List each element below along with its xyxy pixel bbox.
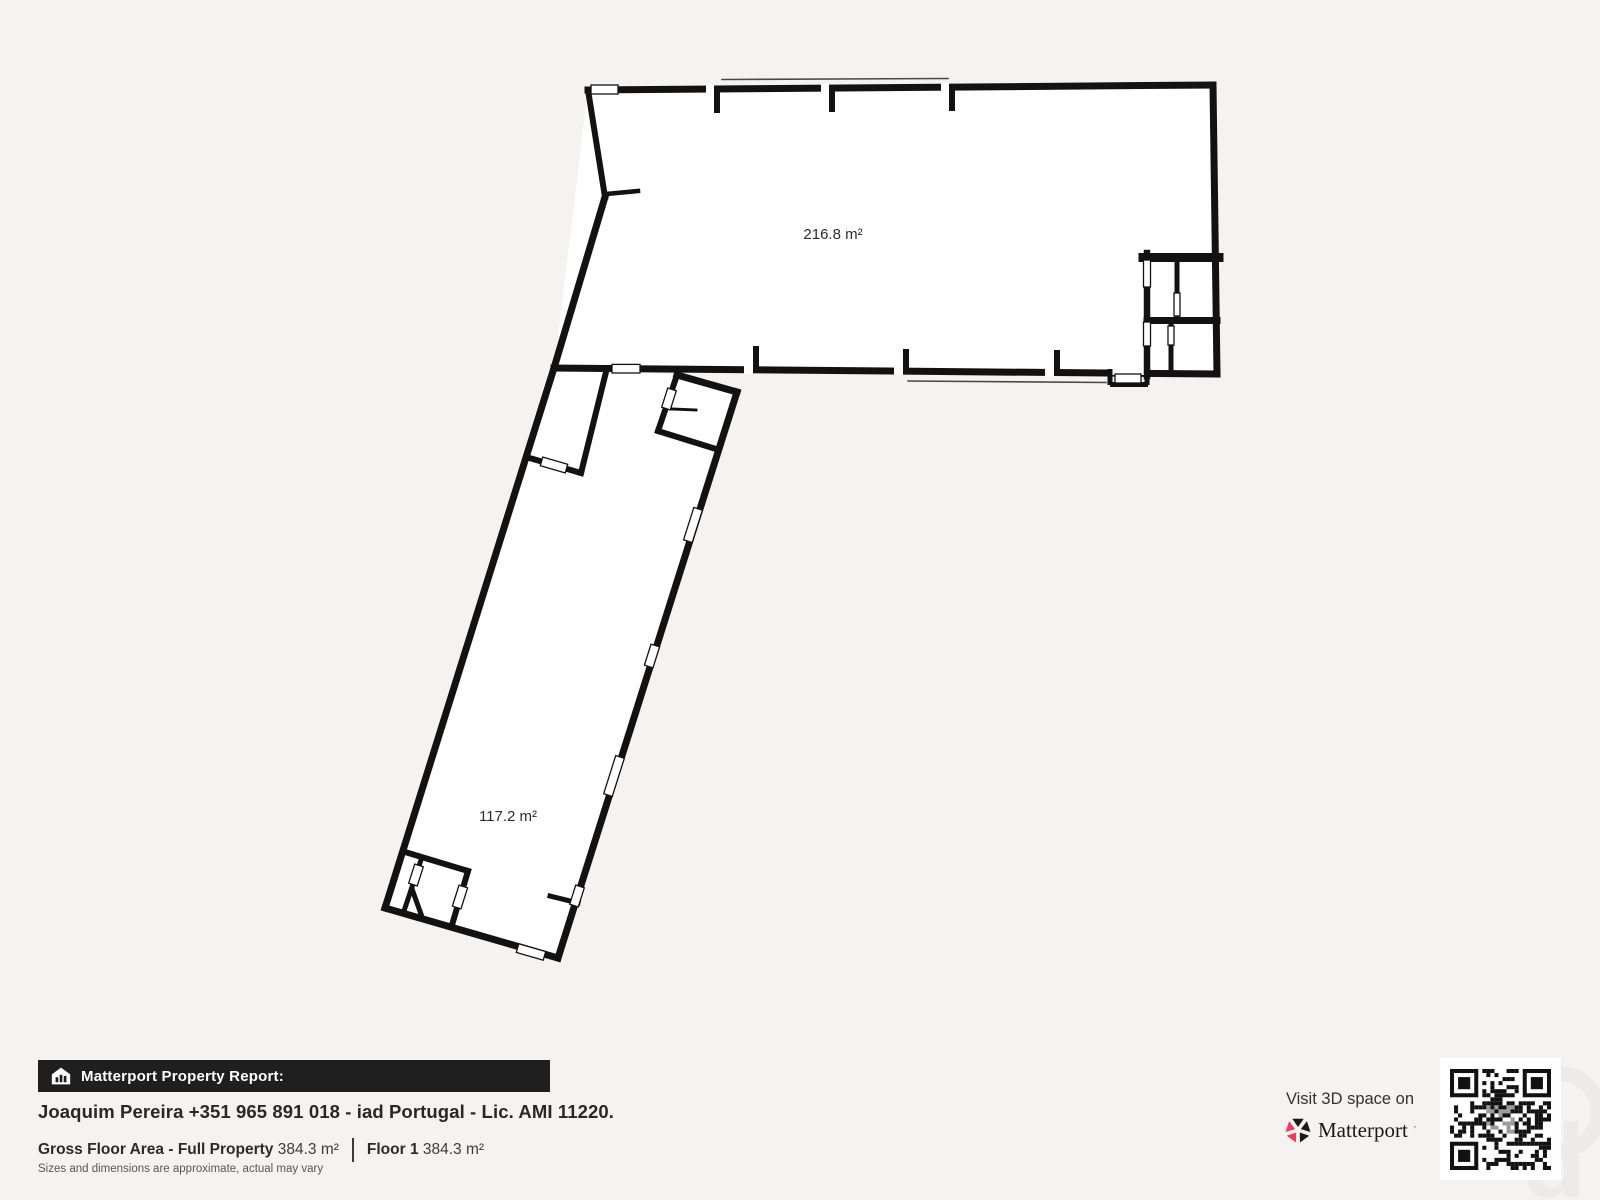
agent-contact-line: Joaquim Pereira +351 965 891 018 - iad P… bbox=[38, 1101, 614, 1123]
matterport-wordmark: Matterport bbox=[1318, 1118, 1408, 1143]
matterport-logo-icon bbox=[1284, 1116, 1312, 1144]
disclaimer-text: Sizes and dimensions are approximate, ac… bbox=[38, 1163, 323, 1175]
floor-label: Floor 1 bbox=[367, 1141, 419, 1159]
matterport-trademark: ’ bbox=[1414, 1125, 1416, 1136]
floor-plan: 216.8 m² 117.2 m² bbox=[0, 0, 1600, 1040]
gross-floor-area-label: Gross Floor Area - Full Property bbox=[38, 1141, 273, 1159]
visit-3d-text: Visit 3D space on bbox=[1266, 1090, 1434, 1109]
floor-fill bbox=[385, 85, 1217, 958]
floor-area-metrics: Gross Floor Area - Full Property 384.3 m… bbox=[38, 1138, 484, 1162]
gross-floor-area-value: 384.3 m² bbox=[278, 1141, 339, 1159]
room-area-label-lower: 117.2 m² bbox=[479, 808, 537, 825]
metrics-separator bbox=[352, 1138, 354, 1162]
qr-card bbox=[1440, 1058, 1561, 1180]
report-bar: Matterport Property Report: bbox=[38, 1060, 550, 1092]
matterport-brand-row: Matterport’ bbox=[1266, 1116, 1434, 1144]
house-chart-icon bbox=[51, 1066, 71, 1086]
property-report-page: 216.8 m² 117.2 m² d Matterport Property … bbox=[0, 0, 1600, 1200]
qr-code bbox=[1450, 1069, 1551, 1170]
room-area-label-upper: 216.8 m² bbox=[803, 226, 862, 243]
floor-value: 384.3 m² bbox=[423, 1141, 484, 1159]
report-bar-label: Matterport Property Report: bbox=[81, 1068, 284, 1085]
visit-3d-cta: Visit 3D space on Matterport’ bbox=[1266, 1090, 1434, 1144]
entry-door-recess bbox=[1110, 364, 1148, 385]
